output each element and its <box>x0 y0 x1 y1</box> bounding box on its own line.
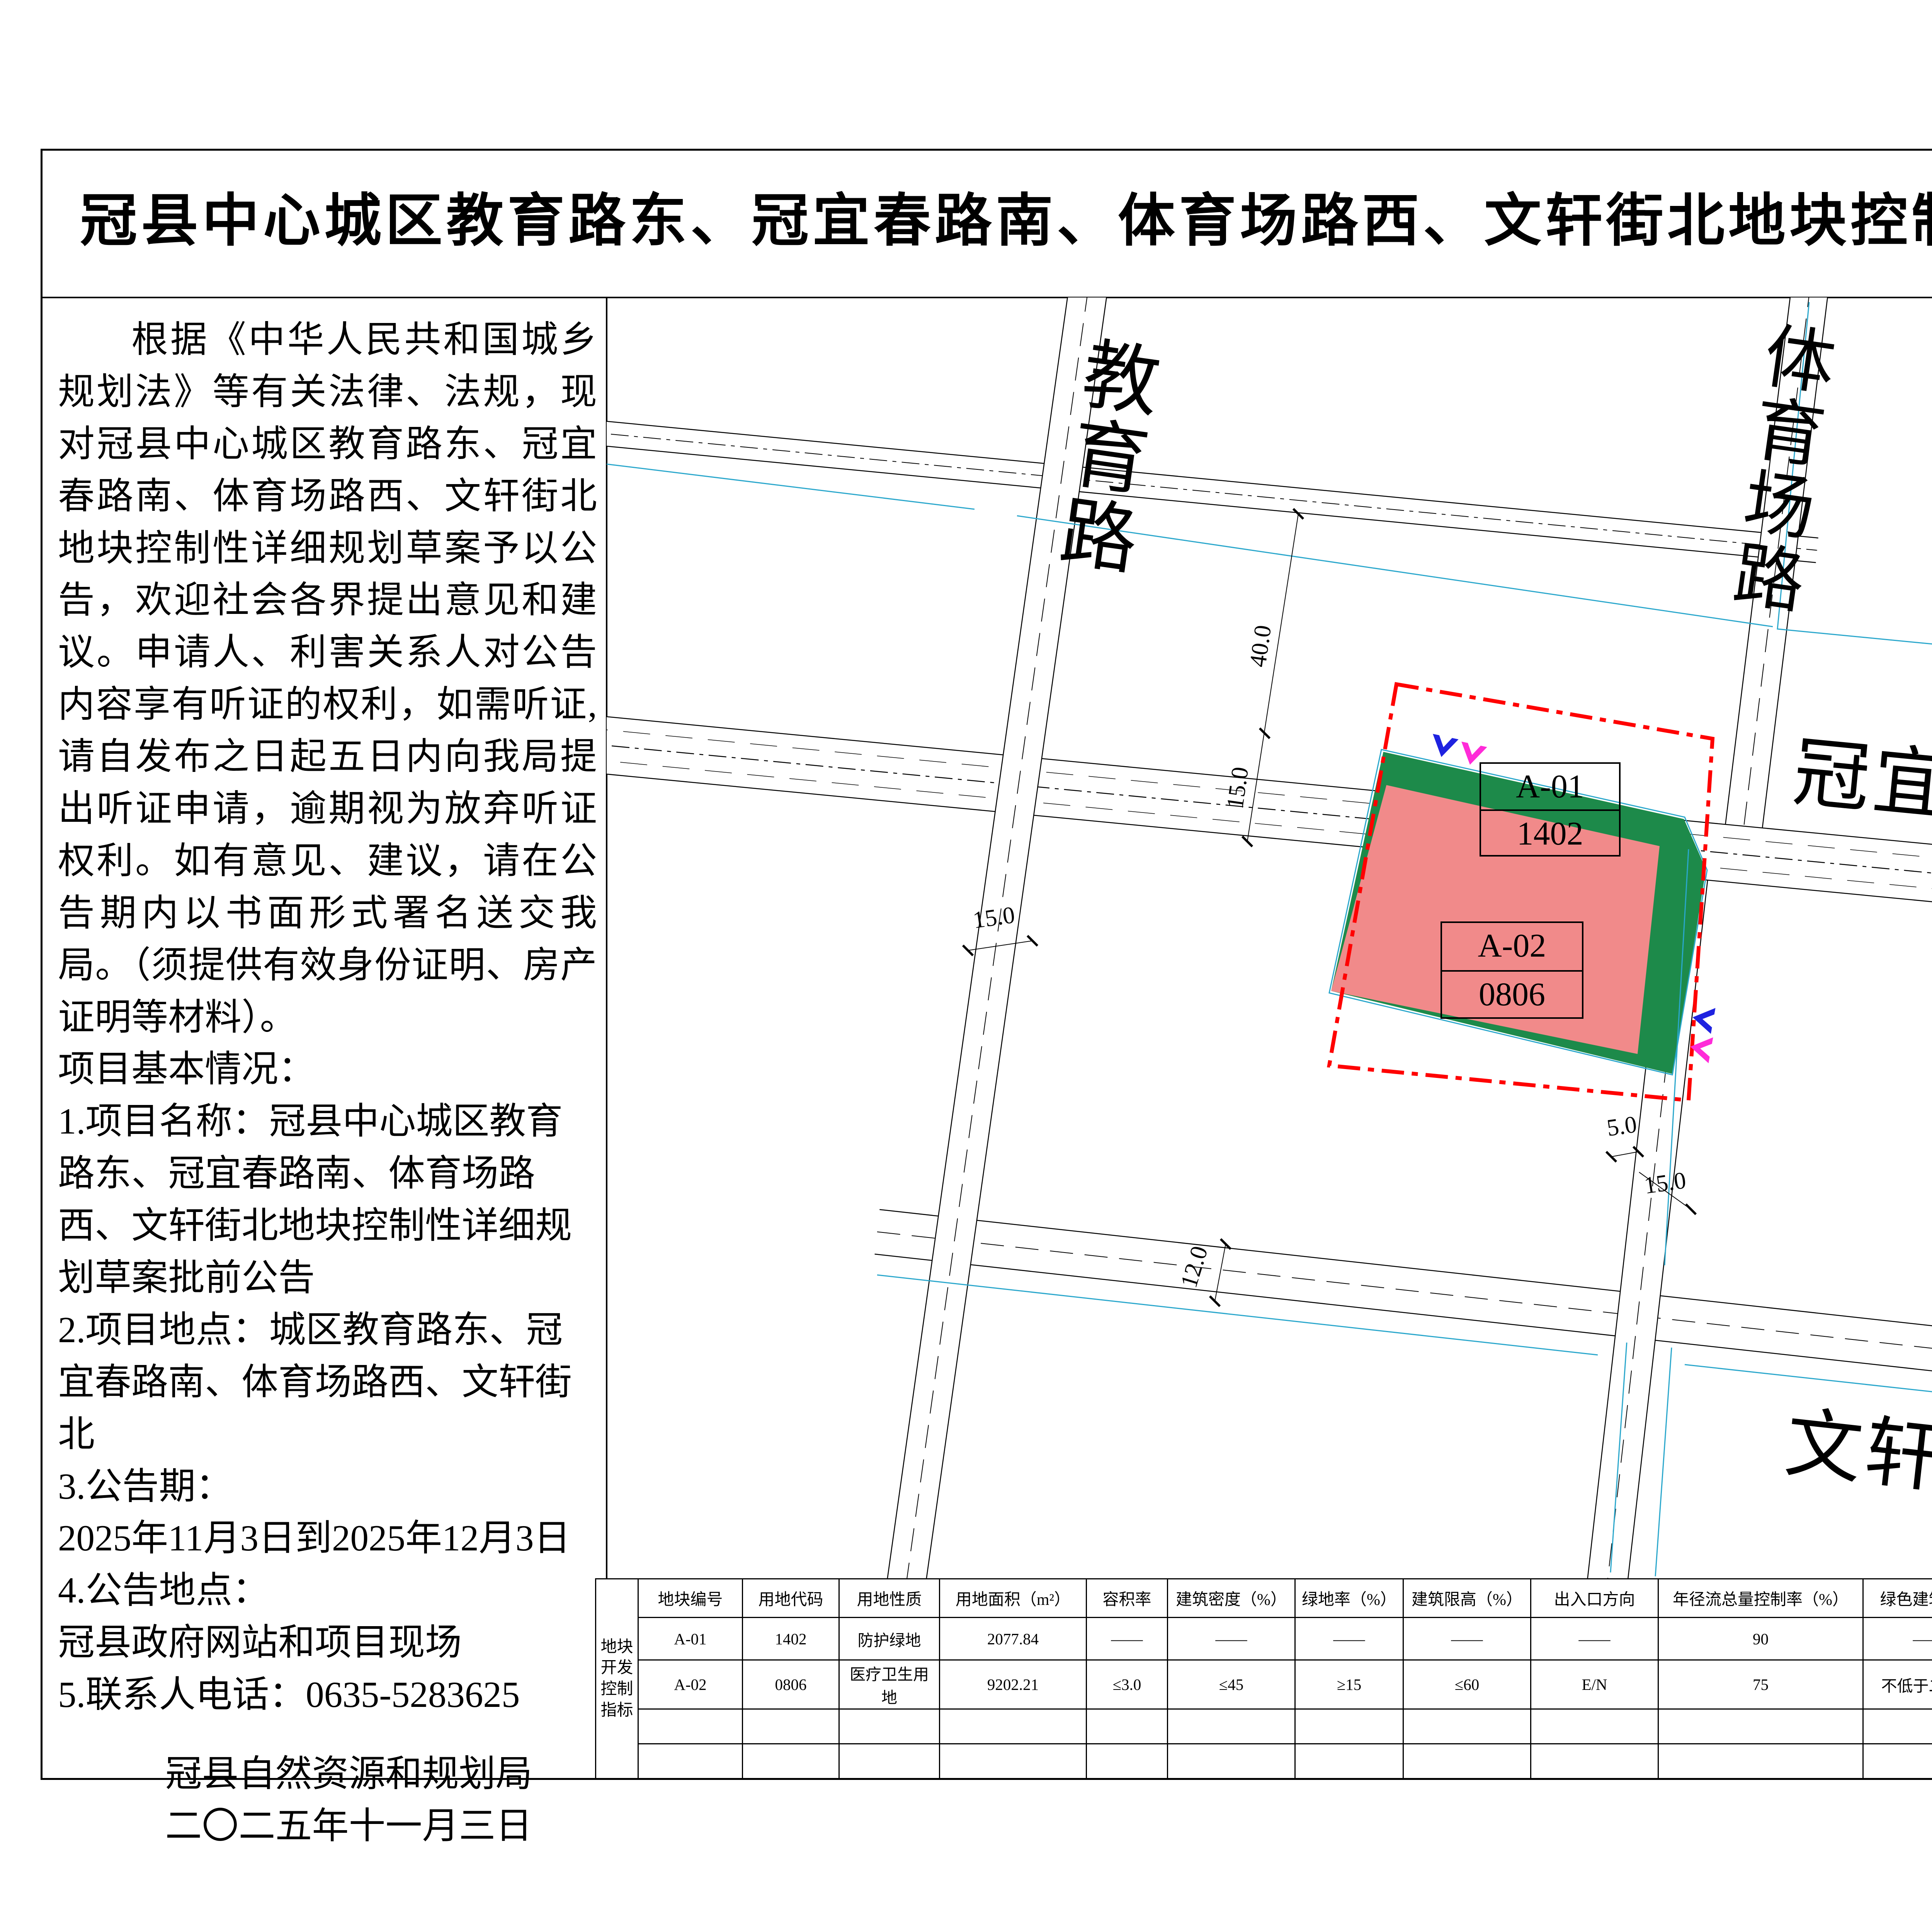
col-header: 用地代码 <box>743 1579 839 1618</box>
announcement-line: 4.公告地点： <box>58 1564 597 1616</box>
wenxuan-road <box>875 1210 1932 1396</box>
col-header: 用地面积（m²） <box>940 1579 1087 1618</box>
cell: 2077.84 <box>940 1618 1087 1660</box>
col-header: 出入口方向 <box>1531 1579 1658 1618</box>
col-header: 年径流总量控制率（%） <box>1658 1579 1863 1618</box>
page-title: 冠县中心城区教育路东、冠宜春路南、体育场路西、文轩街北地块控制性详细规划草案批前… <box>43 174 1932 257</box>
announcement-line: 5.联系人电话：0635-5283625 <box>58 1669 597 1721</box>
control-indicator-table-wrap: 地块开发控制指标 地块编号 用地代码 用地性质 用地面积（m²） 容积率 建筑密… <box>595 1578 1932 1779</box>
table-row-empty <box>596 1709 1932 1744</box>
announcement-line: 项目基本情况： <box>58 1043 597 1095</box>
cell: 9202.21 <box>940 1660 1087 1709</box>
col-header: 容积率 <box>1087 1579 1168 1618</box>
cell: E/N <box>1531 1660 1658 1709</box>
dim-label: 40.0 <box>1245 624 1276 669</box>
dim-label: 15.0 <box>1643 1167 1688 1199</box>
parcel-box-a01: A-01 1402 <box>1480 762 1621 857</box>
cell: 不低于二星级 <box>1863 1660 1932 1709</box>
cell: 0806 <box>743 1660 839 1709</box>
cell: 防护绿地 <box>839 1618 940 1660</box>
table-row: A-01 1402 防护绿地 2077.84 —— —— —— —— —— 90… <box>596 1618 1932 1660</box>
table-vertical-header: 地块开发控制指标 <box>596 1579 638 1779</box>
col-header: 地块编号 <box>638 1579 743 1618</box>
announcement-line: 1.项目名称：冠县中心城区教育路东、冠宜春路南、体育场路西、文轩街北地块控制性详… <box>58 1095 597 1304</box>
cell: —— <box>1168 1618 1295 1660</box>
signature-date: 二〇二五年十一月三日 <box>58 1800 597 1852</box>
signature-org: 冠县自然资源和规划局 <box>58 1748 597 1800</box>
announcement-line: 2.项目地点：城区教育路东、冠宜春路南、体育场路西、文轩街北 <box>58 1304 597 1460</box>
table-row-empty <box>596 1744 1932 1779</box>
cell: ≤45 <box>1168 1660 1295 1709</box>
cell: 75 <box>1658 1660 1863 1709</box>
cell: 90 <box>1658 1618 1863 1660</box>
north-ew-road <box>607 419 1818 563</box>
control-indicator-table: 地块开发控制指标 地块编号 用地代码 用地性质 用地面积（m²） 容积率 建筑密… <box>595 1578 1932 1779</box>
announcement-paragraph: 根据《中华人民共和国城乡规划法》等有关法律、法规，现对冠县中心城区教育路东、冠宜… <box>58 314 597 1043</box>
cell: A-01 <box>638 1618 743 1660</box>
col-header: 建筑密度（%） <box>1168 1579 1295 1618</box>
cell: ≤3.0 <box>1087 1660 1168 1709</box>
col-header: 建筑限高（%） <box>1403 1579 1531 1618</box>
cell: ≥15 <box>1295 1660 1403 1709</box>
parcel-box-a02: A-02 0806 <box>1440 921 1583 1019</box>
announcement-line: 2025年11月3日到2025年12月3日 <box>58 1512 597 1564</box>
cell: —— <box>1531 1618 1658 1660</box>
col-header: 用地性质 <box>839 1579 940 1618</box>
cell: —— <box>1403 1618 1531 1660</box>
cell: —— <box>1863 1618 1932 1660</box>
announcement-line: 冠县政府网站和项目现场 <box>58 1616 597 1669</box>
cell: ≤60 <box>1403 1660 1531 1709</box>
announcement-line: 3.公告期： <box>58 1460 597 1513</box>
cell: 医疗卫生用地 <box>839 1660 940 1709</box>
parcel-code: 0806 <box>1442 972 1582 1019</box>
dim-label: 5.0 <box>1605 1111 1638 1141</box>
cell: —— <box>1295 1618 1403 1660</box>
vehicle-entrance-arrow <box>1429 734 1459 760</box>
col-header: 绿地率（%） <box>1295 1579 1403 1618</box>
parcel-id: A-02 <box>1442 923 1582 972</box>
cell: 1402 <box>743 1618 839 1660</box>
parcel-code: 1402 <box>1481 811 1619 857</box>
announcement-text: 根据《中华人民共和国城乡规划法》等有关法律、法规，现对冠县中心城区教育路东、冠宜… <box>58 314 597 1852</box>
table-row: A-02 0806 医疗卫生用地 9202.21 ≤3.0 ≤45 ≥15 ≤6… <box>596 1660 1932 1709</box>
col-header: 绿色建筑标准 <box>1863 1579 1932 1618</box>
parcel-id: A-01 <box>1481 764 1619 811</box>
planning-notice-page: 冠县中心城区教育路东、冠宜春路南、体育场路西、文轩街北地块控制性详细规划草案批前… <box>0 0 1932 1919</box>
cell: A-02 <box>638 1660 743 1709</box>
cell: —— <box>1087 1618 1168 1660</box>
